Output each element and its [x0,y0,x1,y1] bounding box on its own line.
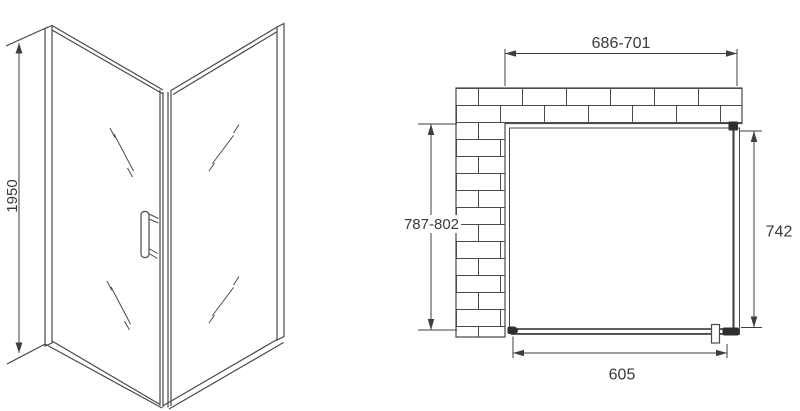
side-panel-bottom-rail [169,343,284,410]
shower-tray-outline [510,128,740,334]
shower-enclosure-drawing: 1950 [0,0,800,411]
arrow-up-icon [428,124,435,135]
extension-line [6,27,48,46]
arrow-up-icon [751,131,758,142]
wall-bracket [729,122,739,131]
wall-profile-left [45,26,52,347]
side-panel-dimension-label: 742 [766,224,793,241]
extension-line [513,337,727,359]
door-right-stile [160,90,163,408]
side-panel [164,24,285,410]
extension-line [739,131,762,328]
extension-line [7,343,48,365]
height-dimension-1950: 1950 [4,27,48,364]
side-panel-plan [729,122,739,334]
width-dimension: 686-701 [505,35,737,86]
plan-view: 686-701 787-802 742 605 [402,35,792,384]
side-panel-bottom-rail [164,340,278,406]
side-panel-dimension: 742 [739,131,792,328]
brick-wall [456,88,742,337]
arrow-left-icon [505,50,516,57]
door-hinge [508,327,519,335]
door-knob-plan [712,325,720,344]
side-panel-top-rail [171,27,278,91]
side-panel-glass-reflections [209,125,239,324]
door-dimension: 605 [513,337,727,384]
door-glass-reflections [107,128,134,330]
side-panel-front-edge [168,90,171,408]
front-view: 1950 [4,24,284,410]
door-plan [508,325,741,344]
technical-drawing-page: 1950 [0,0,800,411]
arrow-left-icon [513,350,524,357]
width-dimension-label: 686-701 [592,35,651,52]
extension-line [505,49,737,86]
wall-profile-right [277,24,284,341]
side-panel-top-rail [173,31,279,95]
door-top-rail [52,30,163,94]
door-top-rail [52,26,163,91]
arrow-right-icon [726,50,737,57]
arrow-right-icon [716,350,727,357]
door-bottom-rail [52,341,160,405]
depth-dimension: 787-802 [402,124,461,330]
arrow-up-icon [16,43,23,54]
depth-dimension-label: 787-802 [404,216,459,233]
height-dimension-label: 1950 [4,179,21,212]
door-panel [45,26,163,409]
door-handle [141,212,159,259]
arrow-down-icon [16,343,23,354]
arrow-down-icon [428,319,435,330]
door-dimension-label: 605 [609,367,636,384]
door-bottom-rail [45,344,162,408]
corner-connector [723,328,740,336]
arrow-down-icon [751,317,758,328]
